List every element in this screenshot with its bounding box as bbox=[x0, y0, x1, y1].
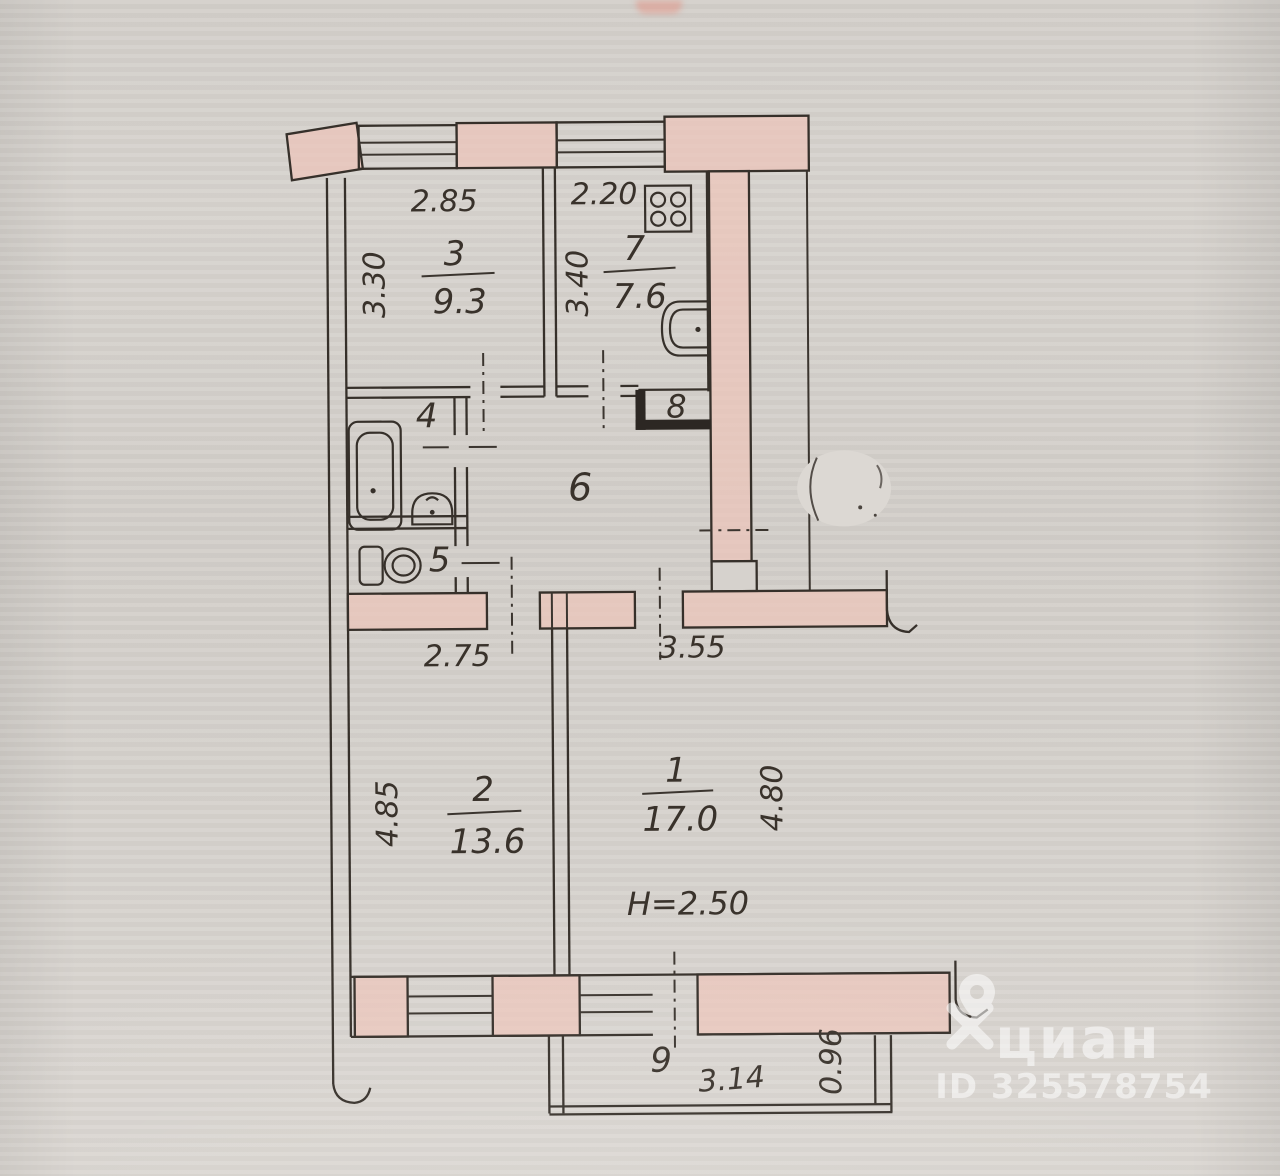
dim-kitchen-width: 2.20 bbox=[571, 177, 638, 212]
dim-room2-width: 2.75 bbox=[424, 639, 491, 674]
watermark: циан ID 325578754 bbox=[935, 974, 1213, 1107]
door-axis bbox=[603, 350, 604, 428]
hallway-top-wall bbox=[346, 385, 710, 398]
load-bearing-wall-vertical bbox=[709, 171, 757, 591]
wall-pier bbox=[492, 975, 579, 1036]
floor-plan-drawing: 2.85 2.20 3.30 3.40 2.75 3.55 4.85 4.80 … bbox=[0, 0, 1280, 1176]
scanned-floor-plan-page: 2.85 2.20 3.30 3.40 2.75 3.55 4.85 4.80 … bbox=[0, 0, 1280, 1176]
dimension-labels: 2.85 2.20 3.30 3.40 2.75 3.55 4.85 4.80 … bbox=[357, 175, 849, 1102]
watermark-id: ID 325578754 bbox=[935, 1067, 1213, 1107]
room3-number: 3 bbox=[443, 234, 465, 274]
room1-area: 17.0 bbox=[642, 799, 718, 840]
bathroom-number: 4 bbox=[416, 396, 438, 436]
hallway-number: 6 bbox=[568, 465, 592, 509]
wall-pier bbox=[664, 116, 808, 172]
toilet bbox=[359, 546, 420, 584]
dim-room2-depth: 4.85 bbox=[370, 780, 405, 847]
wall-segment bbox=[712, 561, 757, 591]
wall-end-hook bbox=[887, 570, 917, 632]
watermark-brand: циан bbox=[995, 1007, 1160, 1072]
kitchen-sink bbox=[662, 301, 708, 355]
fraction-line bbox=[447, 811, 521, 815]
window bbox=[557, 122, 665, 168]
floor-plan: 2.85 2.20 3.30 3.40 2.75 3.55 4.85 4.80 … bbox=[286, 114, 988, 1116]
erased-mark bbox=[797, 450, 892, 527]
door-axis bbox=[674, 952, 675, 1048]
door-axis bbox=[483, 353, 484, 433]
wall-end-hook bbox=[333, 1084, 370, 1103]
window bbox=[359, 125, 457, 169]
bottom-exterior-wall bbox=[350, 960, 987, 1036]
room3-kitchen-divider-wall bbox=[543, 167, 557, 396]
wall-pier bbox=[287, 123, 363, 181]
room1-number: 1 bbox=[665, 751, 687, 791]
dim-room1-depth: 4.80 bbox=[755, 764, 790, 831]
stove bbox=[645, 185, 691, 231]
toilet-number: 5 bbox=[429, 540, 451, 580]
dim-balcony-width: 3.14 bbox=[697, 1060, 766, 1100]
kitchen-area: 7.6 bbox=[613, 277, 667, 317]
dim-room3-depth: 3.30 bbox=[357, 251, 392, 318]
door-axis bbox=[512, 557, 513, 659]
room2-number: 2 bbox=[472, 770, 494, 810]
drain bbox=[370, 488, 375, 493]
window bbox=[408, 996, 493, 1014]
closet-number: 8 bbox=[666, 388, 687, 426]
wash-basin bbox=[412, 493, 452, 524]
wall-pier bbox=[354, 976, 407, 1036]
bathtub bbox=[349, 422, 402, 530]
room3-area: 9.3 bbox=[433, 282, 487, 322]
dim-room1-width: 3.55 bbox=[659, 630, 726, 665]
wall-pier bbox=[697, 973, 949, 1035]
dim-room3-width: 2.85 bbox=[411, 184, 478, 219]
kitchen-number: 7 bbox=[623, 229, 645, 269]
fraction-line bbox=[642, 790, 713, 793]
room1-room2-divider-wall bbox=[552, 628, 569, 975]
window bbox=[580, 995, 653, 1013]
balcony-number: 9 bbox=[650, 1041, 672, 1081]
dim-balcony-depth: 0.96 bbox=[814, 1028, 849, 1095]
room2-area: 13.6 bbox=[450, 822, 526, 863]
drain bbox=[695, 327, 700, 332]
boundary-line bbox=[807, 171, 810, 591]
wall-pier bbox=[457, 122, 557, 168]
drain bbox=[430, 510, 435, 515]
ceiling-height-note: H=2.50 bbox=[627, 884, 749, 923]
dim-kitchen-depth: 3.40 bbox=[560, 250, 595, 317]
